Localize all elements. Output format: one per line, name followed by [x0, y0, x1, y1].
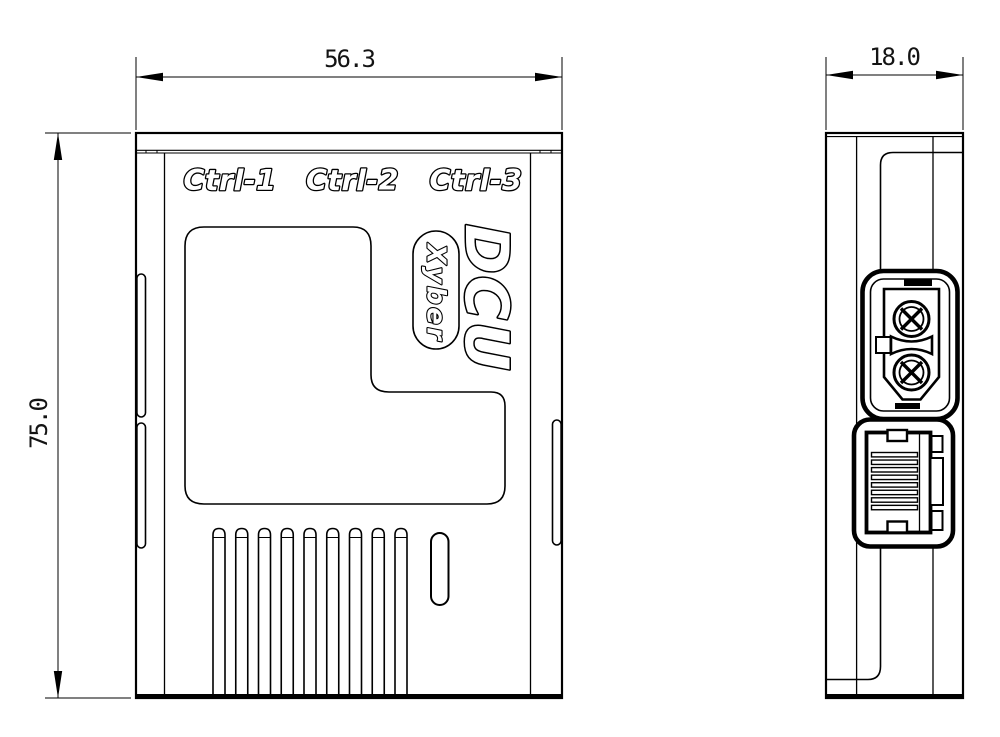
- arrowhead-down-icon: [54, 671, 62, 698]
- depth-dimension-value: 18.0: [869, 43, 919, 71]
- port-labels: Ctrl-1 Ctrl-2 Ctrl-3: [183, 164, 522, 197]
- brand-text: DCU: [451, 224, 521, 373]
- vent-slot: [259, 529, 271, 695]
- latch-keyway: [931, 458, 944, 505]
- drawing-canvas: 56.3 75.0 Ctrl-1 Ctrl-2 Ctrl-3: [0, 0, 1000, 737]
- vent-slot: [350, 529, 362, 695]
- front-view: 56.3 75.0 Ctrl-1 Ctrl-2 Ctrl-3: [25, 45, 563, 698]
- vent-slot: [304, 529, 316, 695]
- vent-slot: [372, 529, 384, 695]
- front-width-dimension: 56.3: [136, 45, 562, 130]
- side-depth-dimension: 18.0: [826, 43, 963, 130]
- contact-pin: [872, 490, 918, 494]
- shield-tab-top: [888, 430, 908, 441]
- side-view: 18.0: [825, 43, 964, 698]
- shield-tab-bottom: [888, 522, 908, 533]
- arrowhead-left-icon: [826, 71, 853, 79]
- arrowhead-right-icon: [535, 73, 562, 81]
- bottom-edge: [825, 694, 964, 698]
- led-slot: [431, 533, 449, 605]
- face-key-top: [904, 280, 932, 287]
- technical-drawing: 56.3 75.0 Ctrl-1 Ctrl-2 Ctrl-3: [0, 0, 1000, 737]
- vent-slot: [281, 529, 293, 695]
- left-tab-lower: [137, 423, 146, 548]
- front-height-dimension: 75.0: [25, 133, 131, 698]
- height-dimension-value: 75.0: [25, 399, 53, 449]
- bottom-edge: [135, 694, 563, 698]
- keyway-step-bottom: [932, 511, 943, 530]
- vent-slot: [395, 529, 407, 695]
- keyway-step-top: [932, 436, 943, 452]
- polarity-tab: [876, 337, 891, 353]
- vent-slot: [236, 529, 248, 695]
- vent-slot: [213, 529, 225, 695]
- contact-pin: [872, 483, 918, 487]
- left-tab-upper: [137, 274, 146, 417]
- connector-bay-contour-top: [881, 153, 964, 272]
- port-label-ctrl2: Ctrl-2: [306, 164, 399, 197]
- logo-text: Xyber: [421, 242, 451, 343]
- connector-bay-contour-bottom: [826, 547, 881, 680]
- port-label-ctrl1: Ctrl-1: [183, 164, 276, 197]
- power-pin-top: [894, 302, 929, 337]
- contact-pin: [872, 468, 918, 472]
- vent-slot: [327, 529, 339, 695]
- top-lip-lines: [136, 150, 562, 153]
- arrowhead-left-icon: [136, 73, 163, 81]
- contact-pin: [872, 505, 918, 509]
- contact-pin: [872, 475, 918, 479]
- width-dimension-value: 56.3: [324, 45, 374, 73]
- power-pin-bottom: [894, 355, 929, 390]
- arrowhead-up-icon: [54, 133, 62, 160]
- contact-pin: [872, 498, 918, 502]
- face-key-bottom: [895, 403, 920, 409]
- contact-pin: [872, 460, 918, 464]
- rj45-ethernet-port-icon: [854, 420, 953, 547]
- vent-slots: [213, 529, 407, 695]
- arrowhead-right-icon: [936, 71, 963, 79]
- port-label-ctrl3: Ctrl-3: [429, 164, 522, 197]
- contact-pin: [872, 453, 918, 457]
- xt30-power-connector-icon: [863, 271, 958, 419]
- right-tab: [553, 420, 562, 545]
